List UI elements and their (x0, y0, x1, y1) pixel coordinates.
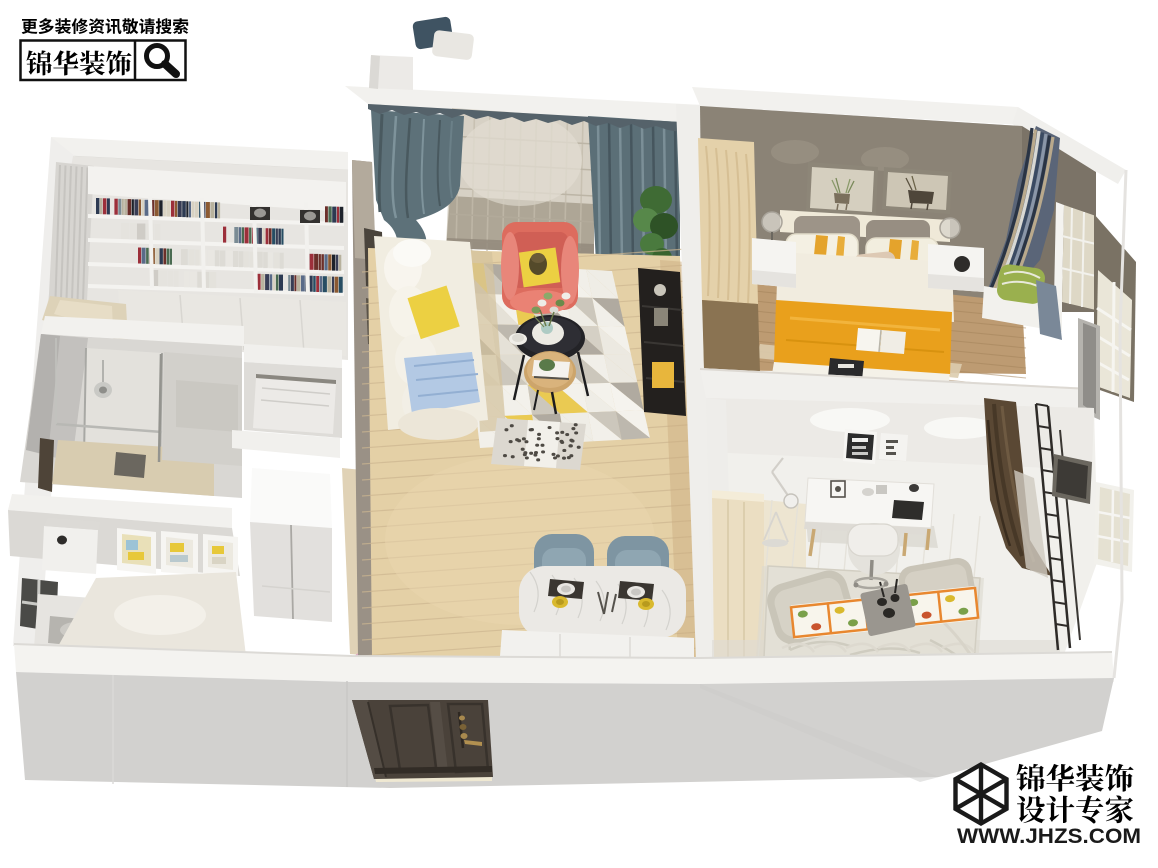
svg-text:WWW.JHZS.COM: WWW.JHZS.COM (957, 825, 1141, 848)
